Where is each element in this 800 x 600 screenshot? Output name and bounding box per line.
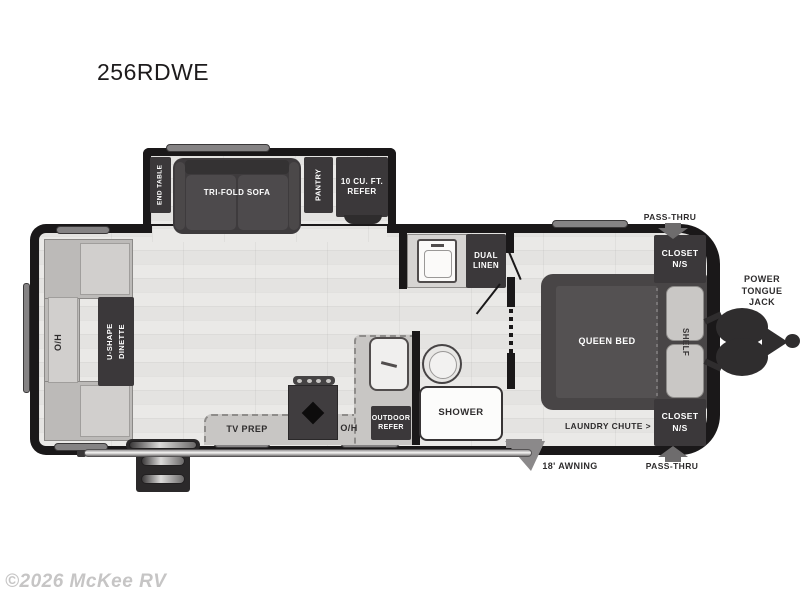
hitch-ball-socket [785, 334, 800, 348]
step-tread [141, 456, 185, 466]
dealer-watermark: ©2026 McKee RV [5, 571, 166, 593]
stove-burners [293, 376, 335, 385]
propane-tank [716, 338, 768, 376]
floor-plan-diagram: 256RDWE ©2026 McKee RV END TABLE TRI-FOL… [0, 0, 800, 600]
step-tread [141, 474, 185, 484]
closet-nightstand-bottom: CLOSET N/S [654, 399, 706, 446]
shelf-label: SHELF [666, 286, 704, 398]
power-tongue-jack-label: POWER TONGUE JACK [726, 274, 798, 309]
pantry-cabinet: PANTRY [304, 157, 333, 213]
stove-grate [302, 401, 325, 424]
awning-rail [84, 449, 532, 457]
roadside-rear-window [56, 226, 110, 234]
bedroom-wall [507, 277, 515, 307]
burner-knob [326, 379, 331, 383]
laundry-chute-label: LAUNDRY CHUTE > [505, 421, 651, 432]
burner-knob [307, 379, 312, 383]
dinette-seat-bottom [80, 385, 130, 437]
cooktop-stove [288, 385, 338, 440]
bath-wall-stub [399, 233, 407, 289]
bedroom-wall [507, 353, 515, 389]
dual-linen-cabinet: DUAL LINEN [466, 234, 506, 288]
pass-thru-label-bottom: PASS-THRU [630, 461, 714, 472]
rear-window [23, 283, 30, 393]
closet-nightstand-top: CLOSET N/S [654, 235, 706, 283]
burner-knob [297, 379, 302, 383]
end-table: END TABLE [150, 157, 171, 213]
bedroom-pocket-door [509, 307, 513, 353]
dinette-seat-top [80, 243, 130, 295]
sink-basin [424, 250, 452, 278]
faucet-icon [381, 361, 397, 368]
kitchen-overhead-label: O/H [334, 423, 364, 435]
sofa-cushion [238, 175, 288, 230]
refrigerator: 10 CU. FT. REFER [336, 157, 388, 217]
step-tread [129, 441, 197, 449]
outdoor-refer: OUTDOOR REFER [371, 406, 411, 440]
sofa-cushion [186, 175, 236, 230]
dinette-overhead-label: O/H [50, 310, 68, 374]
refrigerator-door [344, 215, 382, 224]
awning-label: 18' AWNING [528, 461, 612, 473]
queen-bed: QUEEN BED [556, 286, 658, 398]
roadside-bedroom-window [552, 220, 628, 228]
arrow-down-icon [658, 228, 688, 239]
sofa-backrest [185, 160, 289, 174]
arrow-up-icon [658, 446, 688, 457]
kitchen-sink [369, 337, 409, 391]
bath-sink [417, 239, 457, 283]
bed-fold-line [656, 288, 658, 396]
model-title: 256RDWE [97, 59, 209, 86]
pass-thru-label-top: PASS-THRU [628, 212, 712, 223]
u-shape-dinette-table: U-SHAPE DINETTE [98, 297, 134, 386]
toilet [422, 344, 462, 384]
burner-knob [316, 379, 321, 383]
pass-thru-arrow-bottom [665, 457, 681, 462]
bedroom-wall [506, 233, 514, 253]
tv-prep-label: TV PREP [210, 424, 284, 436]
sofa-label: TRI-FOLD SOFA [173, 188, 301, 198]
faucet-icon [431, 244, 444, 247]
toilet-bowl [429, 351, 457, 379]
slideout-window [166, 144, 270, 152]
shower: SHOWER [419, 386, 503, 441]
